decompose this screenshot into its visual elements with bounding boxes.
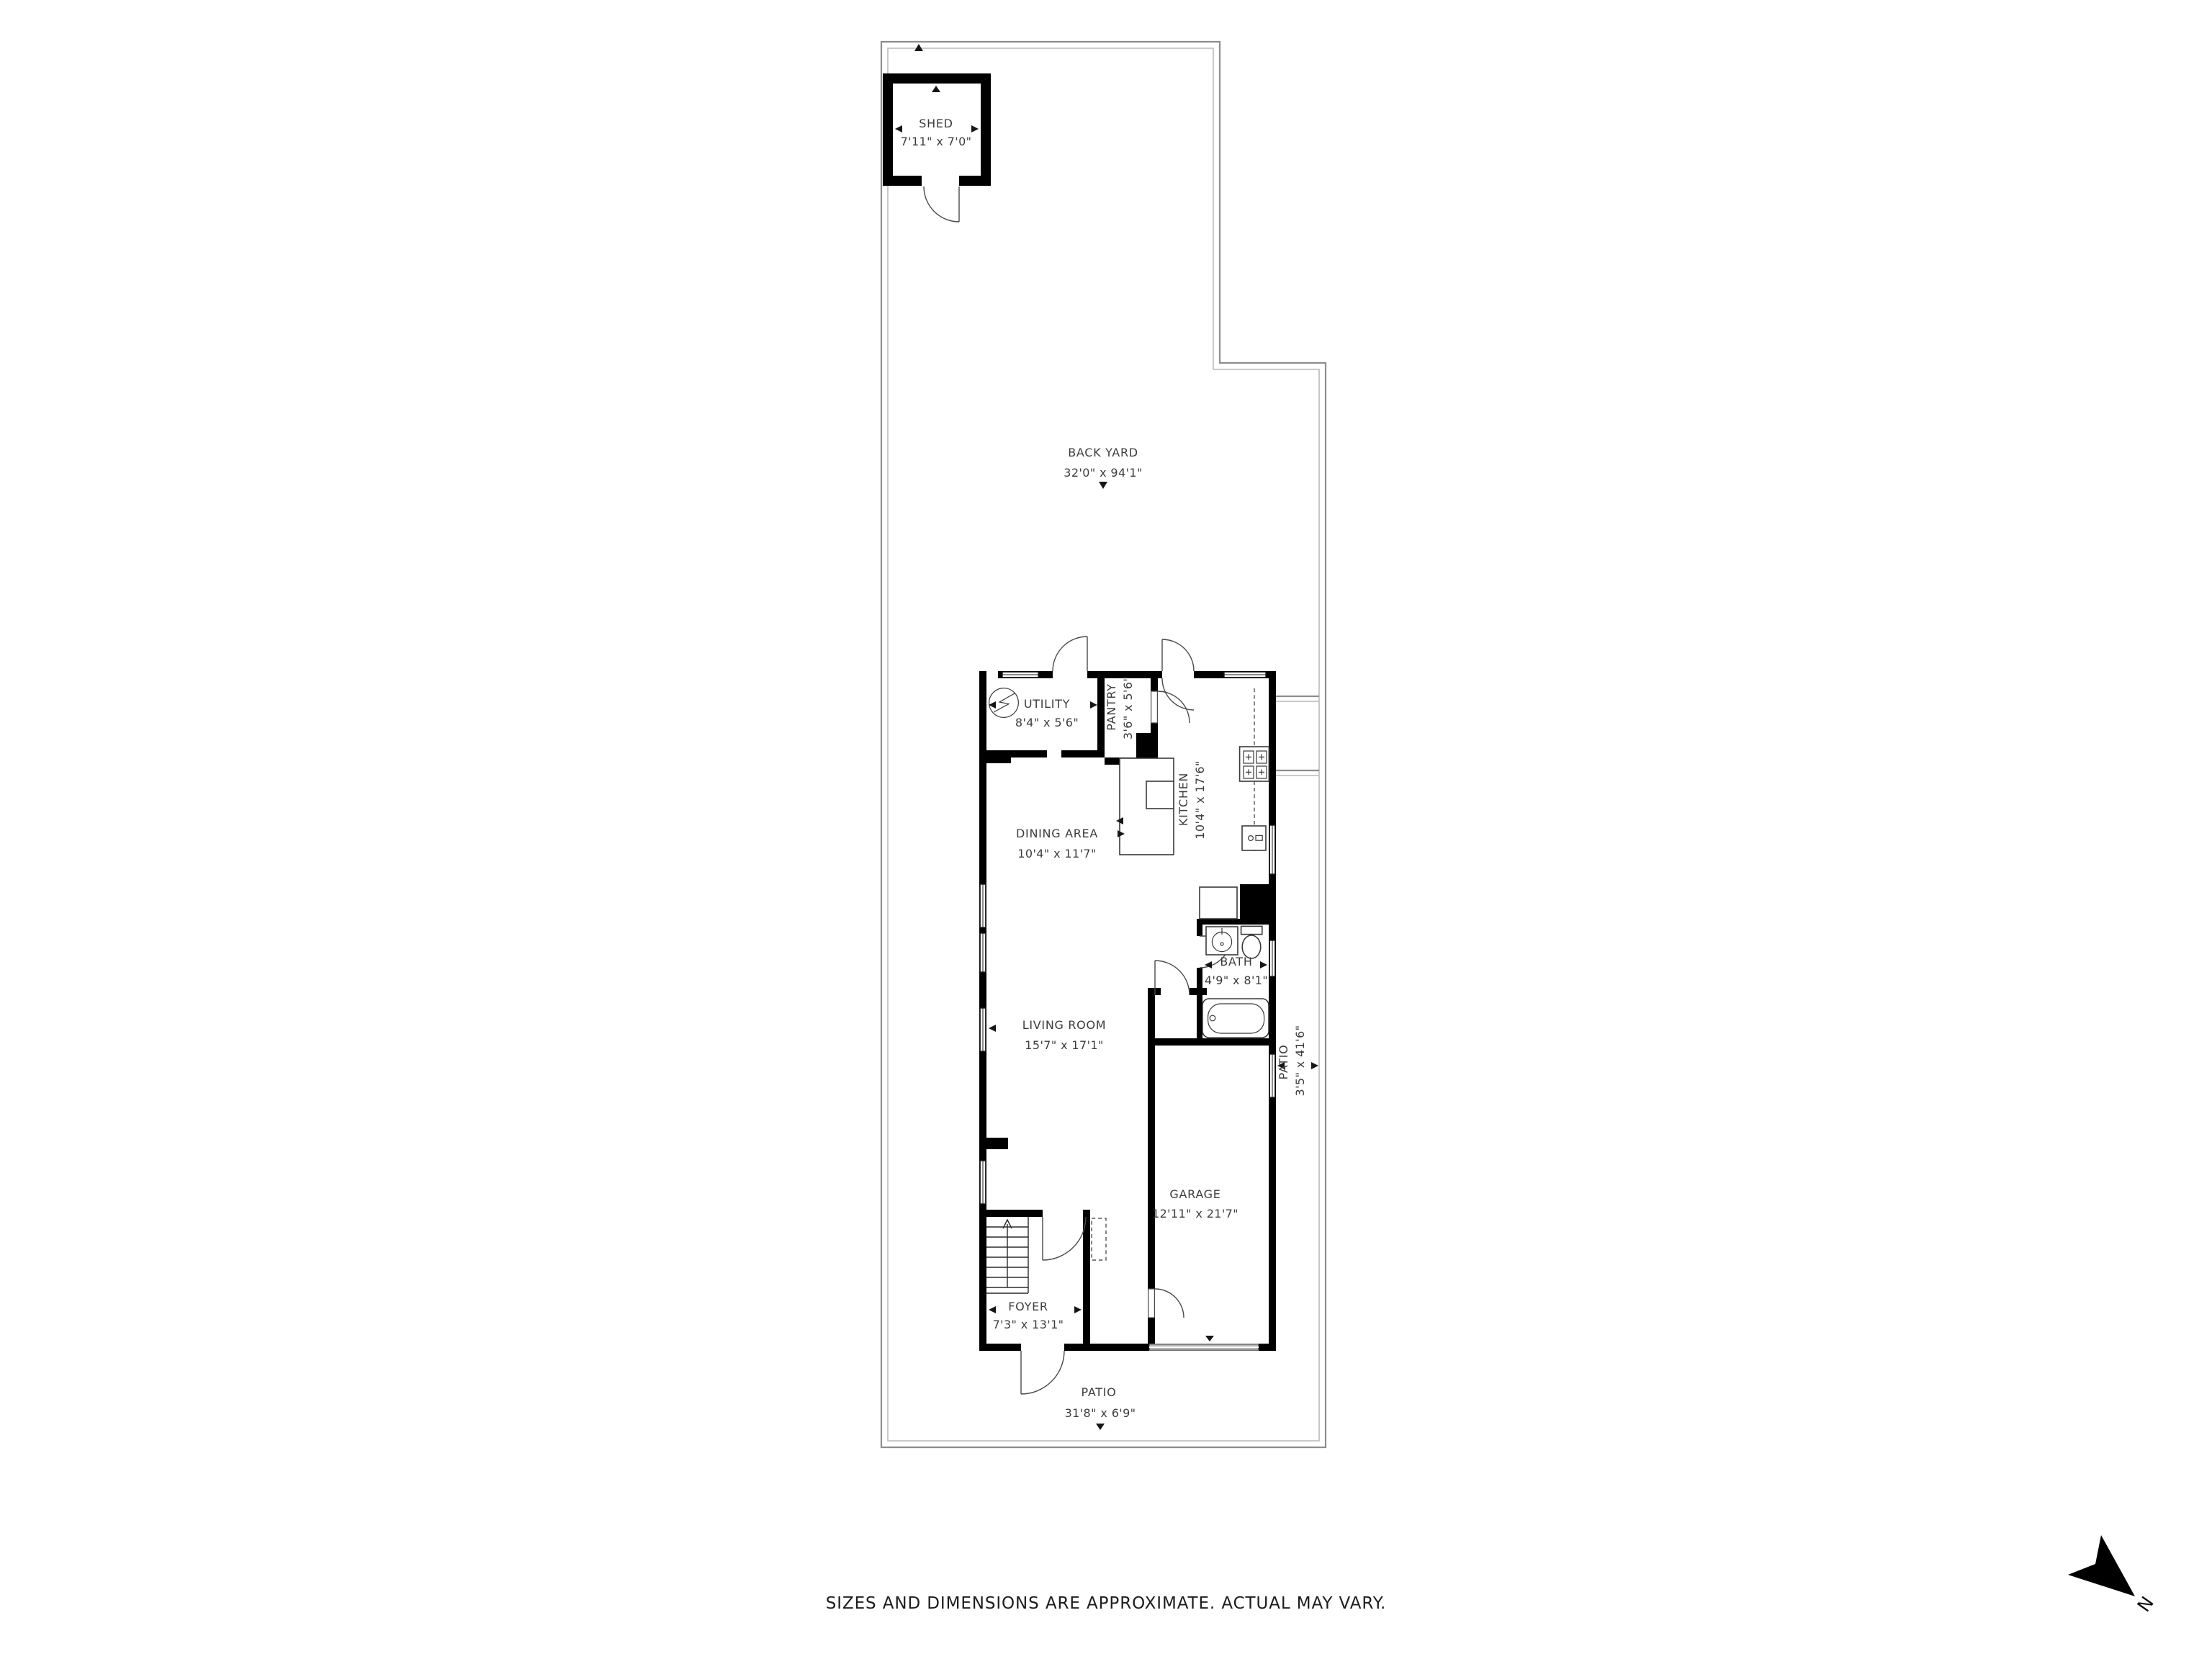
room-name-dining: DINING AREA: [1016, 827, 1098, 840]
room-name-shed: SHED: [919, 117, 953, 130]
room-name-living: LIVING ROOM: [1022, 1018, 1107, 1032]
room-dims-kitchen: 10'4" x 17'6": [1193, 760, 1207, 839]
room-name-foyer: FOYER: [1008, 1300, 1048, 1313]
stove: [1240, 747, 1269, 781]
refrigerator: [1200, 887, 1237, 919]
utility-back-door: [1053, 637, 1087, 671]
room-dims-patio-front: 31'8" x 6'9": [1065, 1406, 1136, 1420]
window: [1269, 1054, 1275, 1097]
toilet: [1241, 926, 1262, 958]
dimension-ticks: [914, 44, 1318, 1430]
window: [1002, 672, 1038, 678]
front-door: [1021, 1351, 1064, 1394]
living-foyer-door: [1043, 1217, 1086, 1260]
room-name-utility: UTILITY: [1024, 697, 1070, 711]
room-name-bath: BATH: [1220, 955, 1252, 968]
room-dims-shed: 7'11" x 7'0": [901, 135, 972, 148]
north-arrow-icon: [2068, 1535, 2135, 1596]
garage-door: [1149, 1344, 1259, 1350]
north-label: N: [2133, 1592, 2157, 1615]
garage-side-door: [1148, 1289, 1184, 1318]
window: [1224, 672, 1266, 678]
room-name-pantry: PANTRY: [1105, 683, 1118, 730]
window: [980, 933, 986, 972]
room-dims-garage: 12'11" x 21'7": [1152, 1207, 1238, 1220]
room-dims-living: 15'7" x 17'1": [1025, 1038, 1103, 1052]
bathtub: [1202, 999, 1269, 1038]
room-name-kitchen: KITCHEN: [1177, 773, 1190, 826]
room-dims-backyard: 32'0" x 94'1": [1064, 466, 1142, 480]
room-dims-foyer: 7'3" x 13'1": [993, 1318, 1064, 1331]
room-dims-dining: 10'4" x 11'7": [1017, 847, 1096, 860]
window: [980, 1161, 986, 1204]
kitchen-sink: [1242, 826, 1266, 850]
room-name-backyard: BACK YARD: [1068, 446, 1138, 459]
room-dims-utility: 8'4" x 5'6": [1015, 716, 1079, 729]
bath-sink: [1206, 927, 1238, 955]
pantry-door: [1151, 691, 1190, 723]
floor-plan: SHED 7'11" x 7'0" BACK YARD 32'0" x 94'1…: [0, 0, 2212, 1659]
disclaimer-text: SIZES AND DIMENSIONS ARE APPROXIMATE. AC…: [826, 1594, 1387, 1613]
north-arrow: N: [2068, 1535, 2157, 1615]
room-name-garage: GARAGE: [1169, 1187, 1220, 1201]
room-name-patio-side: PATIO: [1277, 1045, 1290, 1080]
window: [1269, 940, 1275, 976]
room-dims-patio-side: 3'5" x 41'6": [1293, 1025, 1307, 1097]
window: [1269, 825, 1275, 874]
room-name-patio-front: PATIO: [1082, 1385, 1117, 1399]
room-dims-bath: 4'9" x 8'1": [1205, 974, 1268, 987]
room-dims-pantry: 3'6" x 5'6": [1121, 676, 1135, 739]
window: [980, 884, 986, 927]
window: [980, 1008, 986, 1051]
understair-closet: [1092, 1218, 1106, 1260]
